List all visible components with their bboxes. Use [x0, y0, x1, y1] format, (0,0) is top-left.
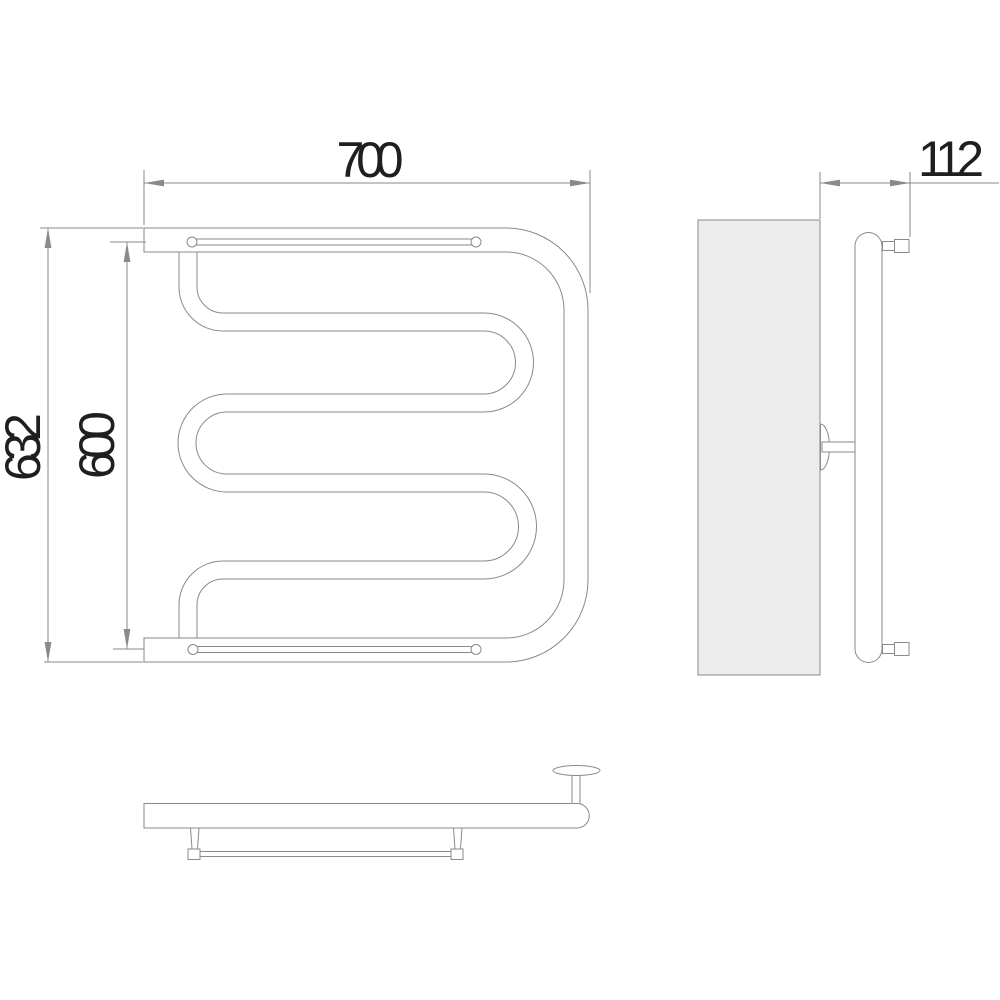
dim-700-arrow-right	[570, 180, 590, 187]
frame-pipe-fill	[144, 240, 576, 650]
top-view	[144, 766, 600, 860]
dim-112-arrow-left	[820, 180, 840, 187]
top-view-bracket	[553, 766, 600, 806]
top-view-rail	[188, 828, 463, 860]
frame-pipe-outline	[144, 240, 576, 650]
dimension-depth-112: 112	[820, 131, 999, 237]
dim-600-arrow-bottom	[124, 629, 131, 649]
towel-rail-bottom-right-mount	[471, 645, 481, 655]
top-view-rail-rod	[200, 852, 451, 857]
dim-label-width: 700	[337, 132, 404, 188]
dim-label-rail-spacing: 600	[69, 411, 125, 479]
top-view-rail-left-base	[188, 849, 200, 860]
dimension-rail-spacing-600: 600	[69, 242, 146, 649]
towel-warmer-drawing: 700 112 632 600	[0, 0, 1000, 1000]
pipe-connector-bottom	[883, 643, 910, 656]
serpentine-coil-fill	[187, 249, 528, 653]
pipe-connector-top	[883, 240, 910, 253]
dim-label-depth: 112	[918, 131, 984, 187]
wall-bracket-stem	[822, 442, 856, 452]
pipe-connector-top-cap	[895, 240, 910, 253]
towel-rail-top-left-mount	[187, 237, 197, 247]
dim-112-arrow-right	[890, 180, 910, 187]
serpentine-coil-outline	[187, 249, 528, 653]
wall-panel	[698, 220, 820, 675]
pipe-connector-bottom-neck	[883, 645, 895, 654]
serpentine-coil	[187, 249, 528, 653]
top-view-bracket-plate	[553, 766, 600, 776]
towel-rail-bottom-left-mount	[188, 645, 198, 655]
top-view-bracket-stem	[572, 772, 580, 805]
side-view	[698, 220, 909, 675]
top-view-pipe	[144, 804, 589, 829]
wall-bracket	[821, 424, 857, 470]
pipe-connector-top-neck	[883, 242, 895, 251]
top-view-rail-right-base	[451, 849, 463, 860]
pipe-connector-bottom-cap	[895, 643, 910, 656]
dim-632-arrow-top	[45, 228, 52, 248]
dim-label-height-overall: 632	[0, 413, 51, 481]
dimension-width-700: 700	[144, 132, 590, 293]
dim-632-arrow-bottom	[45, 642, 52, 662]
frame-pipe	[144, 228, 576, 663]
top-view-rail-left-stem	[191, 828, 200, 849]
technical-drawing-page: 700 112 632 600	[0, 0, 1000, 1000]
front-view	[144, 228, 576, 663]
dim-700-arrow-left	[144, 180, 164, 187]
top-view-rail-right-stem	[454, 828, 463, 849]
towel-rail-top-right-mount	[471, 237, 481, 247]
dim-600-arrow-top	[124, 242, 131, 262]
